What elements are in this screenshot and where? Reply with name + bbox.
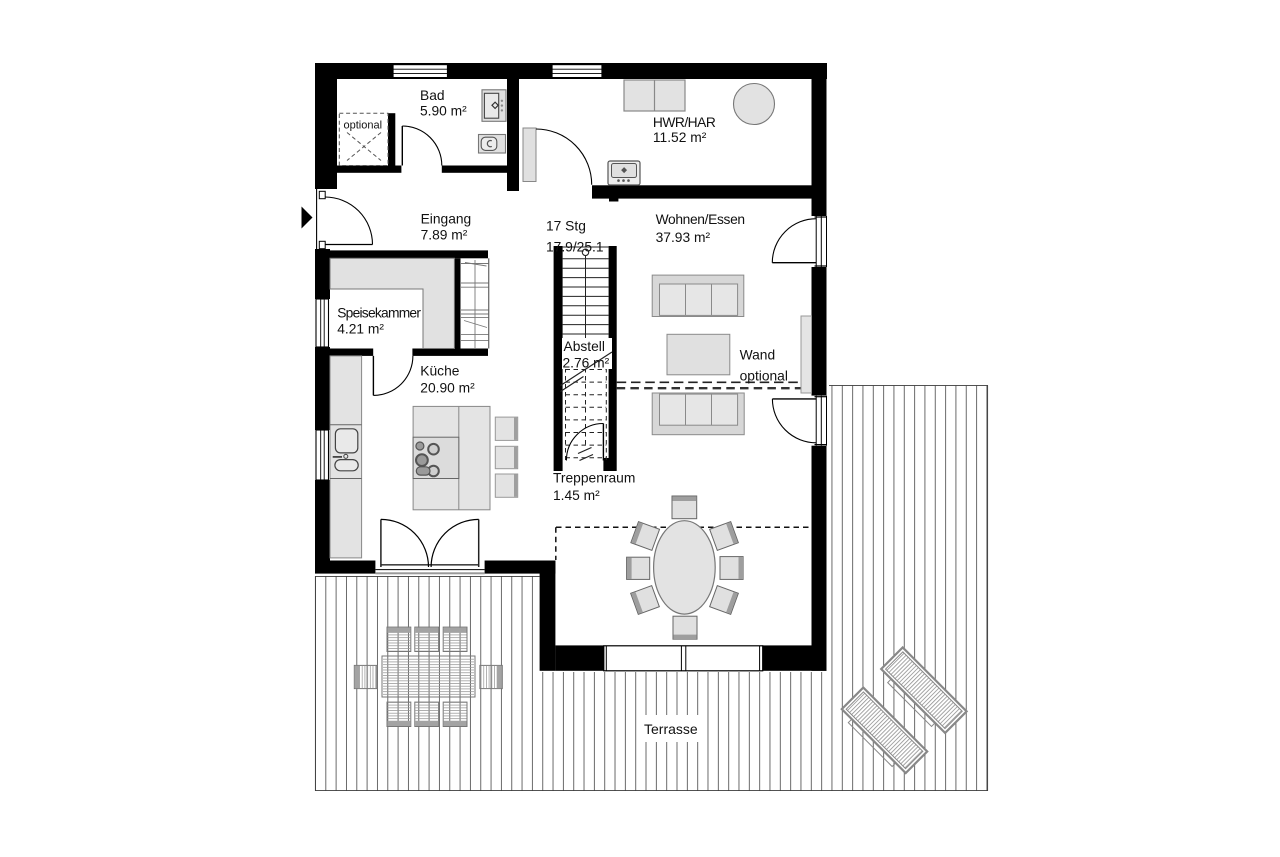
svg-text:17.9/25.1: 17.9/25.1 bbox=[546, 240, 604, 255]
svg-text:optional: optional bbox=[740, 369, 788, 384]
svg-text:Abstell: Abstell bbox=[564, 339, 605, 354]
svg-text:Wand: Wand bbox=[740, 348, 776, 363]
svg-text:17 Stg: 17 Stg bbox=[546, 219, 586, 234]
svg-text:Eingang: Eingang bbox=[421, 212, 472, 227]
svg-text:5.90 m²: 5.90 m² bbox=[420, 104, 467, 119]
svg-text:HWR/HAR: HWR/HAR bbox=[653, 115, 716, 130]
svg-text:optional: optional bbox=[344, 120, 383, 132]
svg-text:1.45 m²: 1.45 m² bbox=[553, 488, 600, 503]
svg-text:37.93 m²: 37.93 m² bbox=[656, 230, 711, 245]
svg-text:Küche: Küche bbox=[420, 364, 459, 379]
svg-text:Bad: Bad bbox=[420, 88, 445, 103]
svg-text:4.21 m²: 4.21 m² bbox=[337, 322, 384, 337]
svg-text:Terrasse: Terrasse bbox=[644, 721, 698, 737]
svg-text:Treppenraum: Treppenraum bbox=[553, 471, 635, 486]
svg-text:2.76 m²: 2.76 m² bbox=[563, 356, 610, 371]
svg-text:11.52 m²: 11.52 m² bbox=[653, 130, 707, 145]
svg-text:Wohnen/Essen: Wohnen/Essen bbox=[656, 212, 745, 227]
svg-text:20.90 m²: 20.90 m² bbox=[420, 381, 475, 396]
svg-text:7.89 m²: 7.89 m² bbox=[421, 228, 468, 243]
svg-text:Speisekammer: Speisekammer bbox=[337, 306, 421, 321]
